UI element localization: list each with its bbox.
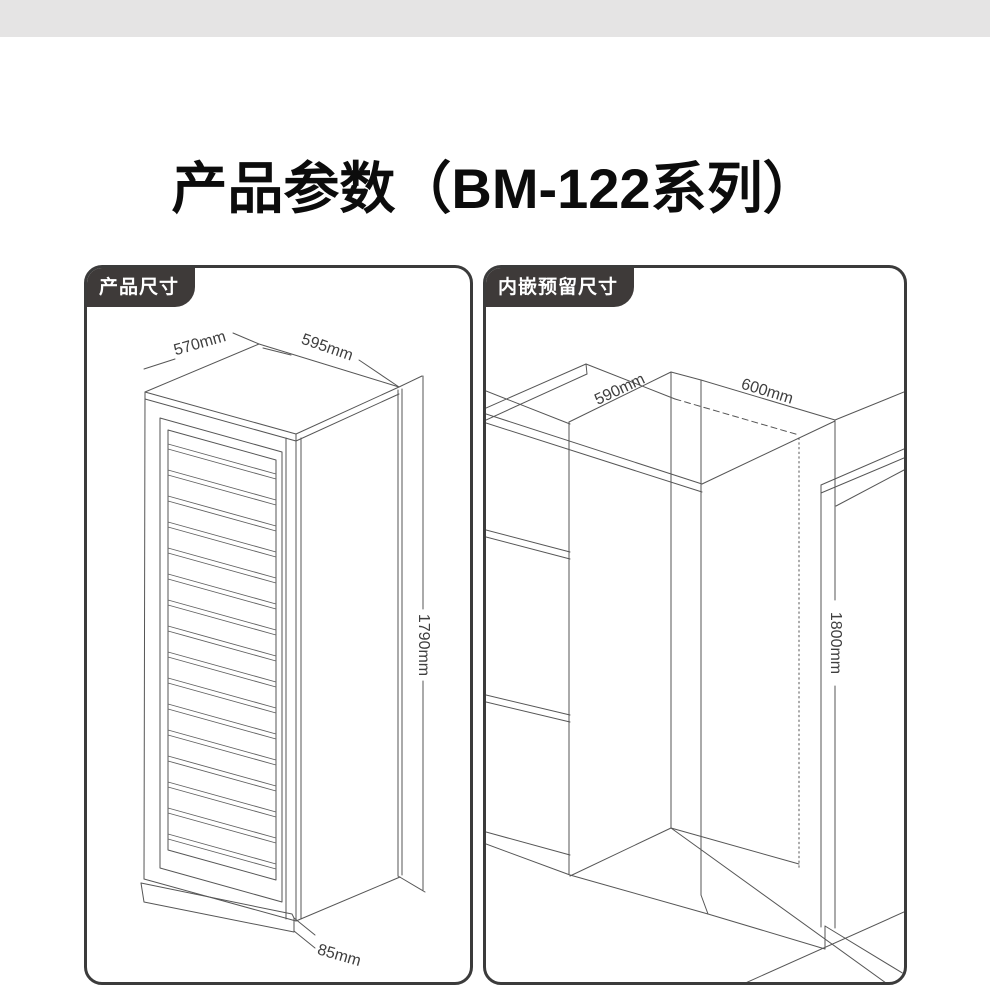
dim-label-height: 1790mm [415,614,432,676]
panel-product-size: 产品尺寸 570mm 595mm 1790mm 85mm [84,265,473,985]
dim-label-height: 1800mm [827,612,844,674]
right-counter-top-edge [821,449,904,485]
page-title: 产品参数（BM-122系列） [0,144,990,225]
dim-label-width: 600mm [739,376,795,408]
slab-front-bottom-edge [486,423,702,492]
dim-1790-tick-top [399,376,422,387]
panel-product-size-label: 产品尺寸 [86,267,195,307]
wine-shelves [168,444,276,869]
dim-label-width: 595mm [299,331,355,364]
left-column-division-lower [486,695,570,722]
dim-label-depth: 570mm [172,328,228,359]
dim-570-leader-right [233,333,259,344]
cabinet-top-face [145,344,399,434]
dim-1790-tick-bottom [398,876,425,892]
dim-85-ticks [294,918,315,948]
top-gray-bar [0,0,990,37]
cabinet-front-left-edge [144,392,145,879]
right-counter-inner-edge [836,470,904,506]
dim-595-leader-right [359,360,399,387]
slab-left-top-edge [486,364,586,408]
plinth-outline [141,883,294,932]
dim-570-leader-left [144,359,175,369]
right-counter-bottom-edge [821,458,904,493]
left-column-division-upper [486,530,570,559]
product-size-diagram: 570mm 595mm 1790mm 85mm [87,268,470,982]
floor-front-edge [671,828,904,982]
left-column-front-top-edge [486,391,570,424]
divider-top-edge [671,372,701,380]
right-run-floor-line [703,912,904,982]
slab-end-cap [586,364,587,374]
dim-label-depth: 590mm [592,371,648,409]
left-column-bottom-edges [486,832,570,875]
niche-floor-back-edge [671,828,799,864]
niche-floor-left-edge [570,828,671,876]
right-floor-edge [825,926,904,974]
panel-builtin-reserved-label: 内嵌预留尺寸 [485,267,634,307]
panel-builtin-reserved: 内嵌预留尺寸 [483,265,907,985]
side-bottom-edge [296,877,400,921]
builtin-reserved-diagram: 590mm 600mm 1800mm [486,268,904,982]
plinth-top-edge [141,883,294,918]
niche-floor-notch [701,895,708,914]
right-back-top-edge [835,392,904,420]
slab-front-top-edge [486,414,702,484]
right-slab-front-edge [702,421,835,484]
dim-label-base-height: 85mm [315,941,362,970]
